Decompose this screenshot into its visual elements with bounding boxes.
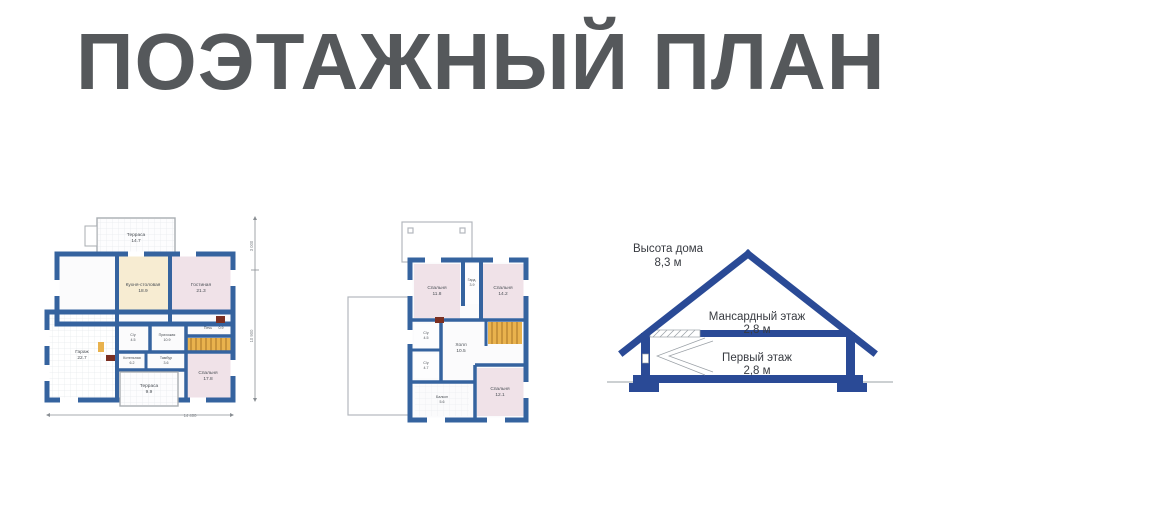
room-area: 14.7: [131, 238, 141, 244]
mansard-label: Мансардный этаж: [709, 311, 806, 323]
room-area: 3.6: [164, 361, 169, 365]
room-label: Спальня: [490, 386, 510, 392]
room-area: 10.9: [164, 338, 171, 342]
first-floor-label: Первый этаж: [722, 352, 792, 364]
room-area: 10.5: [456, 348, 466, 354]
room-label: С/у: [423, 361, 429, 365]
room-label: С/у: [423, 331, 429, 335]
room-area: 0.9: [219, 326, 224, 330]
height-value: 8,3 м: [654, 257, 681, 269]
room-area: 4.7: [424, 366, 429, 370]
mansard-floor-plan: Спальня 11.8 Гард. 3.9 Спальня 14.2 С/у …: [335, 200, 540, 435]
room-label: Кухня-столовая: [126, 282, 161, 288]
room-area: 17.8: [203, 376, 213, 382]
terrace-bottom: Терраса 9.9: [120, 372, 178, 406]
room-area: 3.9: [470, 283, 475, 287]
room-area: 18.9: [138, 288, 148, 294]
room-label: Терраса: [127, 232, 146, 238]
wall-window: [643, 354, 649, 363]
height-label: Высота дома: [633, 243, 704, 255]
page-title: ПОЭТАЖНЫЙ ПЛАН: [76, 16, 886, 108]
room-area: 6.2: [130, 361, 135, 365]
door-accents: [435, 317, 444, 323]
stairs: [186, 338, 231, 352]
room-label: Гостиная: [191, 282, 212, 288]
room-label: Гард.: [468, 278, 477, 282]
terrace-top: Терраса 14.7: [85, 218, 175, 254]
room-label: Котельная: [123, 356, 140, 360]
first-floor-plan: Терраса 14.7: [40, 210, 275, 445]
dim-side-top: 3 000: [249, 240, 254, 251]
room-area: 4.5: [424, 336, 429, 340]
dim-bottom: 14 400: [184, 413, 197, 418]
dim-side-main: 10 900: [249, 329, 254, 342]
room-area: 12.1: [495, 392, 505, 398]
room-label: Терраса: [140, 383, 159, 389]
room-label: Балкон: [436, 395, 448, 399]
first-floor-value: 2,8 м: [743, 365, 770, 377]
room-area: 11.8: [433, 291, 442, 297]
room-area: 4.5: [131, 338, 136, 342]
house-section: Высота дома 8,3 м Мансардный этаж 2,8 м …: [605, 230, 895, 405]
house-section-drawing: Высота дома 8,3 м Мансардный этаж 2,8 м …: [605, 230, 895, 405]
room-label: Спальня: [198, 370, 218, 376]
room-label: Холл: [455, 342, 467, 348]
room-label: Печь: [204, 326, 212, 330]
room-label: Спальня: [493, 285, 513, 291]
room-area: 21.3: [196, 288, 206, 294]
room-label: Тамбур: [160, 356, 172, 360]
room-area: 22.7: [77, 355, 87, 361]
stairs: [488, 322, 522, 344]
room-label: Прихожая: [159, 333, 176, 337]
room-area: 5.6: [440, 400, 445, 404]
room-label: Спальня: [427, 285, 447, 291]
mansard-value: 2,8 м: [743, 324, 770, 336]
mansard-floor-plan-drawing: Спальня 11.8 Гард. 3.9 Спальня 14.2 С/у …: [335, 200, 540, 435]
first-floor-plan-drawing: Терраса 14.7: [40, 210, 275, 445]
room-area: 9.9: [146, 389, 153, 395]
slide: ПОЭТАЖНЫЙ ПЛАН Терраса 14.7: [0, 0, 1170, 514]
room-label: С/у: [130, 333, 136, 337]
room-area: 14.2: [498, 291, 508, 297]
room-label: Гараж: [75, 349, 89, 355]
